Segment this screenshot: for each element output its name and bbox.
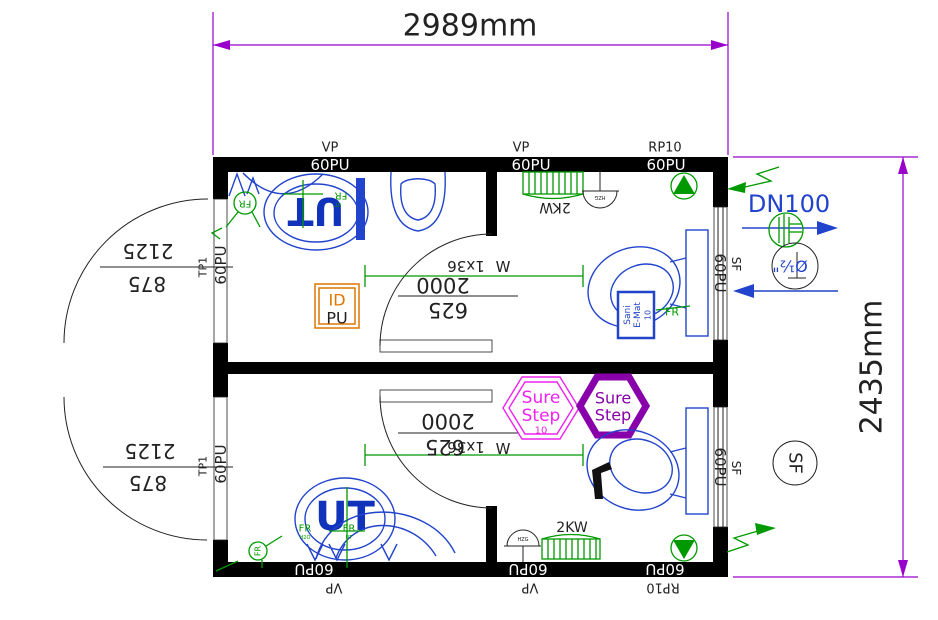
sf-label: SF [729,257,743,272]
step-label: Step [595,406,631,425]
door-panel-label: TP1 [197,257,210,278]
hook-icon [381,544,397,560]
id-pu-badge: ID PU [315,284,359,328]
wall-left-segment [213,540,228,577]
fr-symbol-leg [252,212,260,227]
fan-down-icon [673,540,695,559]
urinal-bowl [401,179,436,220]
heater-top: 2KW [523,172,583,215]
wall-left-segment [213,157,228,199]
vent-label: VP [521,580,538,595]
sani-label-1: Sani [623,305,633,324]
roof-panel-label: RP10 [648,141,681,156]
room-offset-label: 625 [428,298,468,322]
toilet-bowl [602,430,681,502]
overall-height-label: 2435mm [855,300,890,435]
panel-label: 60PU [711,447,729,486]
paper-holder-mark [592,462,612,499]
lightning-line [727,531,758,552]
door-panel-label: TP1 [197,456,210,477]
arrow-left-icon [733,284,754,298]
vent-label: VP [513,141,530,156]
fr-label: FR [254,545,263,556]
fr-symbol-leg [266,536,282,546]
sf-label: SF [729,461,743,476]
sure-step-badge: Sure Step [580,377,646,435]
hzg-label: HZG [594,194,605,200]
partition-top [486,172,497,236]
wall-right-segment [713,527,728,577]
room-length-label: 2000 [421,409,474,433]
window-lower: 60PU SF [711,407,743,527]
sani-label-2: E-Mat [633,302,643,328]
arrowhead-right-icon [711,40,728,50]
fr-label: FR [343,524,356,535]
arrow-right-icon [817,221,838,235]
partition-bottom [486,506,497,562]
window-upper: 60PU SF [711,207,743,340]
heater-power-label: 2KW [539,199,571,215]
fr-symbol-leg [226,212,238,227]
vent-label: VP [322,141,339,156]
hook-icon [247,178,259,194]
arrowhead-left-icon [213,40,230,50]
heater-bottom: 2KW [542,520,600,559]
fr-label: FR [665,306,679,319]
panel-label: 60PU [711,253,729,292]
room-bottom-left: UT FR H2O FR UT FR [216,478,455,571]
partition-screen [356,178,365,240]
room-length-label: 2000 [416,273,469,297]
lamp-watt-label: W [496,440,511,458]
panel-label: 60PU [294,560,333,578]
lamp-label: 1x36 [447,257,485,275]
lamp-watt-label: W [496,258,511,276]
door-height-label: 2125 [125,439,176,463]
fr-label: FR [335,190,348,201]
door-leaf [380,340,492,352]
exhaust-fan-top [671,173,697,199]
urinal-outline [391,172,446,231]
panel-label: 60PU [646,156,685,174]
exhaust-fan-bottom [671,535,697,561]
vent-label: VP [325,580,342,595]
roof-panel-label: RP10 [646,580,679,595]
fr-sublabel: UT [346,535,354,541]
cistern [686,408,708,514]
panel-label: 60PU [212,245,230,284]
arrowhead-down-icon [898,560,908,577]
panel-label: 60PU [310,156,349,174]
floor-plan-page: 2989mm 2435mm VP VP RP10 60PU 60PU 60PU … [0,0,938,620]
heater-body [542,539,600,559]
power-feed-bottom [727,523,776,552]
wall-right-segment [713,157,728,207]
cistern [686,230,708,336]
door-width-label: 875 [128,272,166,296]
fr-sublabel: H2O [300,535,311,541]
room-top-left: UT FR FR UT ID PU [226,172,445,328]
vent-pipe-symbol [769,213,803,247]
sf-symbol: SF [773,441,817,485]
hzg-label: HZG [517,537,528,543]
step-number-label: 10 [535,426,548,437]
lightning-line [745,167,779,187]
entry-door-top: 2125 875 TP1 60PU [64,199,233,343]
room-top-right: 2KW HZG Sani E-Mat 10 FR [523,172,708,341]
arrowhead-up-icon [898,157,908,174]
door-swing-arc [64,397,207,540]
pipe-diameter-label: Ø½" [772,257,807,276]
hzg-unit-top: HZG [582,172,619,208]
door-leaf [380,390,492,402]
room-bottom-right: Sure Step 10 Sure Step 2KW [503,377,708,562]
pu-label: PU [326,309,347,328]
flow-arrow-out [742,221,838,235]
floor-plan-canvas: 2989mm 2435mm VP VP RP10 60PU 60PU 60PU … [0,0,938,620]
entry-door-bottom: 2125 875 TP1 60PU [64,397,233,540]
water-pipe-symbol: Ø½" [772,243,818,289]
door-height-label: 2125 [123,239,174,263]
sani-e-mat-badge: Sani E-Mat 10 [618,292,654,338]
fr-sublabel: UT [334,201,342,207]
overall-height-dimension: 2435mm [733,157,918,577]
panel-label: 60PU [508,560,547,578]
heater-power-label: 2KW [556,520,588,536]
panel-label: 60PU [212,444,230,483]
lightning-arrow-icon [755,523,776,535]
sure-step-10-badge: Sure Step 10 [503,377,579,439]
service-annotations: DN100 Ø½" SF [727,167,838,552]
door-swing-arc [64,199,208,343]
overall-width-dimension: 2989mm [213,9,728,156]
id-label: ID [328,291,345,310]
sani-label-3: 10 [644,310,653,320]
sf-label: SF [785,452,806,474]
heater-edge [523,194,583,199]
lamp-label: 1x36 [447,438,485,456]
overall-width-label: 2989mm [403,9,538,44]
wall-middle [213,362,728,374]
sure-label: Sure [522,388,561,408]
fan-up-icon [673,175,695,194]
step-label: Step [522,406,561,426]
panel-label: 60PU [511,156,550,174]
room-dimension-top: 2000 625 1x36 W [365,257,583,322]
fr-label: FR [299,524,312,535]
door-width-label: 875 [129,471,167,495]
panel-label: 60PU [645,560,684,578]
fr-label: FR [239,198,252,209]
hzg-unit-bottom: HZG [504,530,541,562]
flow-arrow-in [733,284,838,298]
lightning-arrow-icon [727,182,746,193]
